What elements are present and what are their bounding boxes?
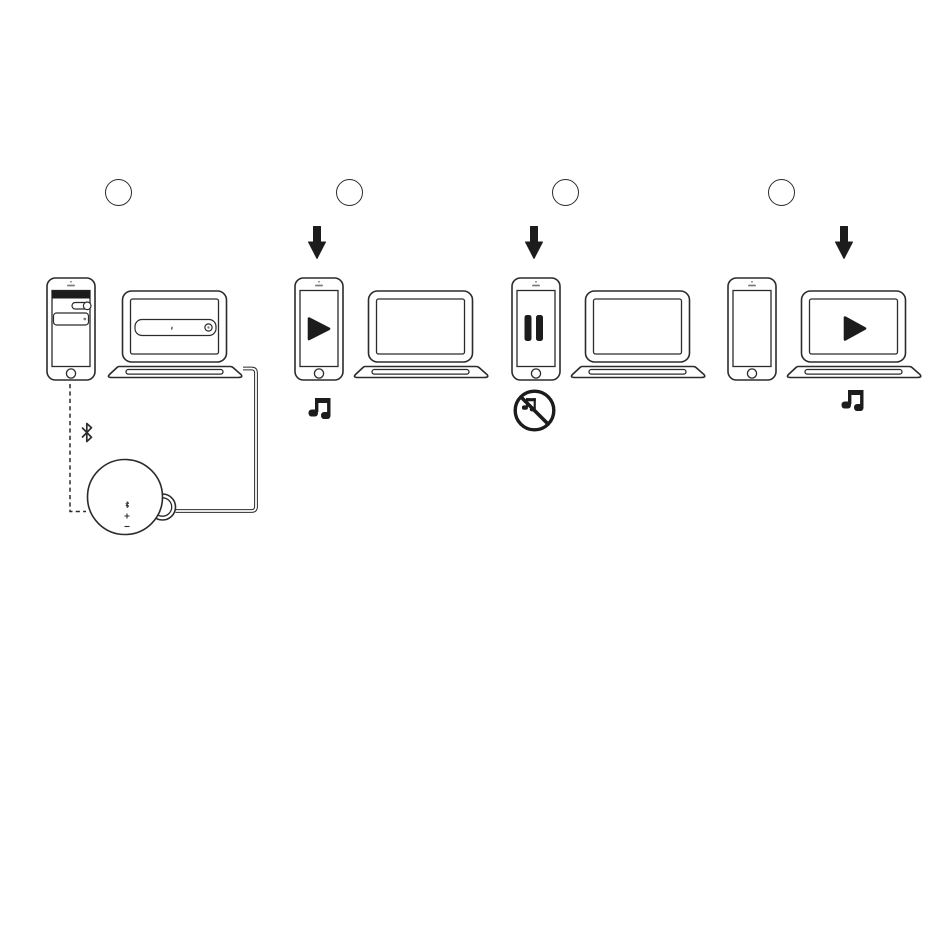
audio-cable (176, 369, 257, 512)
search-field-button-dot (207, 326, 209, 328)
laptop-playing (786, 290, 922, 382)
home-button-icon (531, 369, 540, 378)
speaker-body (88, 460, 163, 535)
bluetooth-icon (83, 424, 92, 442)
earpiece-icon (532, 285, 540, 287)
laptop-keyboard-slot (805, 370, 902, 375)
earpiece-icon (67, 285, 75, 287)
laptop-idle (570, 290, 706, 382)
earpiece-icon (748, 285, 756, 287)
phone-screen (733, 291, 771, 367)
laptop-keyboard-slot (126, 370, 223, 375)
home-button-icon (314, 369, 323, 378)
toggle-knob-icon (83, 302, 91, 310)
down-arrow-icon (308, 226, 326, 259)
list-item-icon (83, 318, 86, 321)
laptop-screen (377, 299, 465, 354)
laptop-keyboard-slot (372, 370, 469, 375)
cursor-mark (172, 327, 173, 330)
search-field (135, 320, 216, 336)
diagram-canvas (0, 0, 950, 951)
no-music-icon (512, 388, 557, 433)
down-arrow-icon (835, 226, 853, 259)
device-list-field (54, 313, 89, 325)
laptop-keyboard-slot (589, 370, 686, 375)
camera-icon (535, 281, 537, 283)
earpiece-icon (315, 285, 323, 287)
phone-paused (511, 277, 561, 381)
home-button-icon (66, 369, 75, 378)
phone-bluetooth-settings (46, 277, 96, 381)
camera-icon (70, 281, 72, 283)
music-note-icon (840, 389, 867, 413)
phone-screen (52, 291, 90, 367)
speaker (84, 455, 186, 547)
status-bar (52, 291, 90, 299)
laptop-idle (353, 290, 489, 382)
laptop-screen (594, 299, 682, 354)
home-button-icon (747, 369, 756, 378)
camera-icon (318, 281, 320, 283)
down-arrow-icon (525, 226, 543, 259)
camera-icon (751, 281, 753, 283)
laptop-bluetooth-search (107, 290, 243, 382)
phone-playing (294, 277, 344, 381)
phone-idle (727, 277, 777, 381)
music-note-icon (307, 397, 334, 421)
